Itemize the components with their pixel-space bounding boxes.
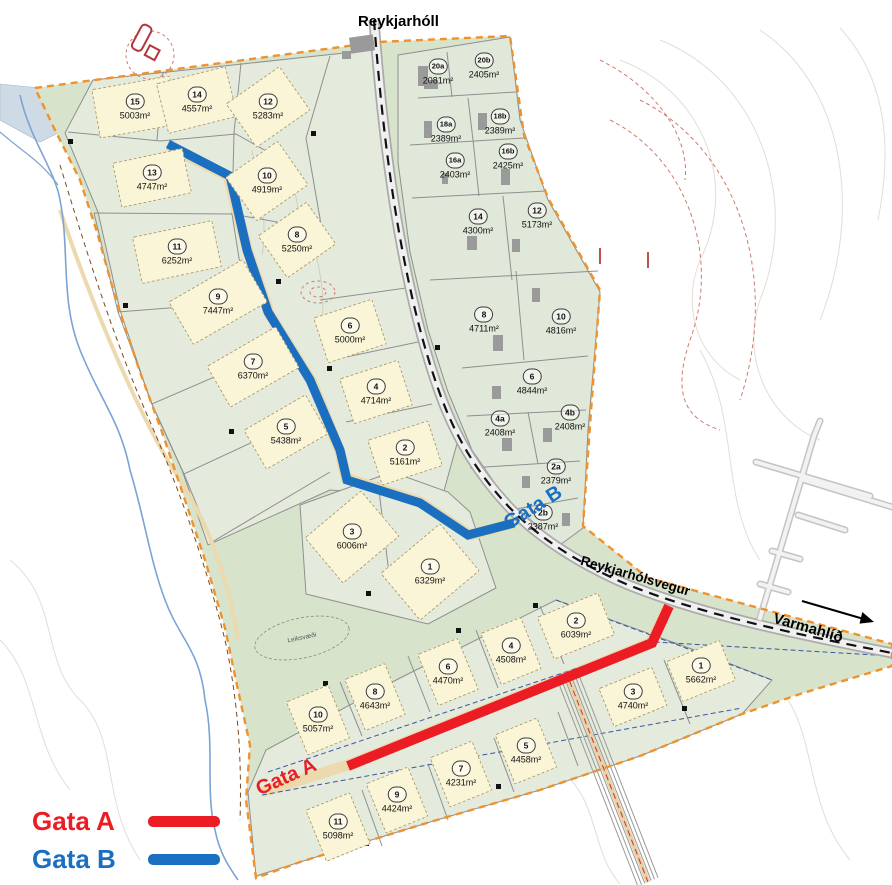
legend-item-gata-b: Gata B xyxy=(32,840,220,878)
legend-label-gata-b: Gata B xyxy=(32,844,144,875)
village-roads xyxy=(756,421,892,618)
red-structure xyxy=(130,23,159,60)
legend: Gata A Gata B xyxy=(32,802,220,878)
legend-item-gata-a: Gata A xyxy=(32,802,220,840)
map-svg xyxy=(0,0,892,885)
legend-label-gata-a: Gata A xyxy=(32,806,144,837)
red-boundary-ticks xyxy=(600,248,648,268)
red-dashed-contours xyxy=(600,60,755,430)
stream-branch xyxy=(0,132,58,185)
site-plan-map: 155003m²144557m²125283m²134747m²104919m²… xyxy=(0,0,892,885)
legend-swatch-gata-a xyxy=(148,816,220,827)
label-reykjarholl: Reykjarhóll xyxy=(358,13,439,30)
legend-swatch-gata-b xyxy=(148,854,220,865)
